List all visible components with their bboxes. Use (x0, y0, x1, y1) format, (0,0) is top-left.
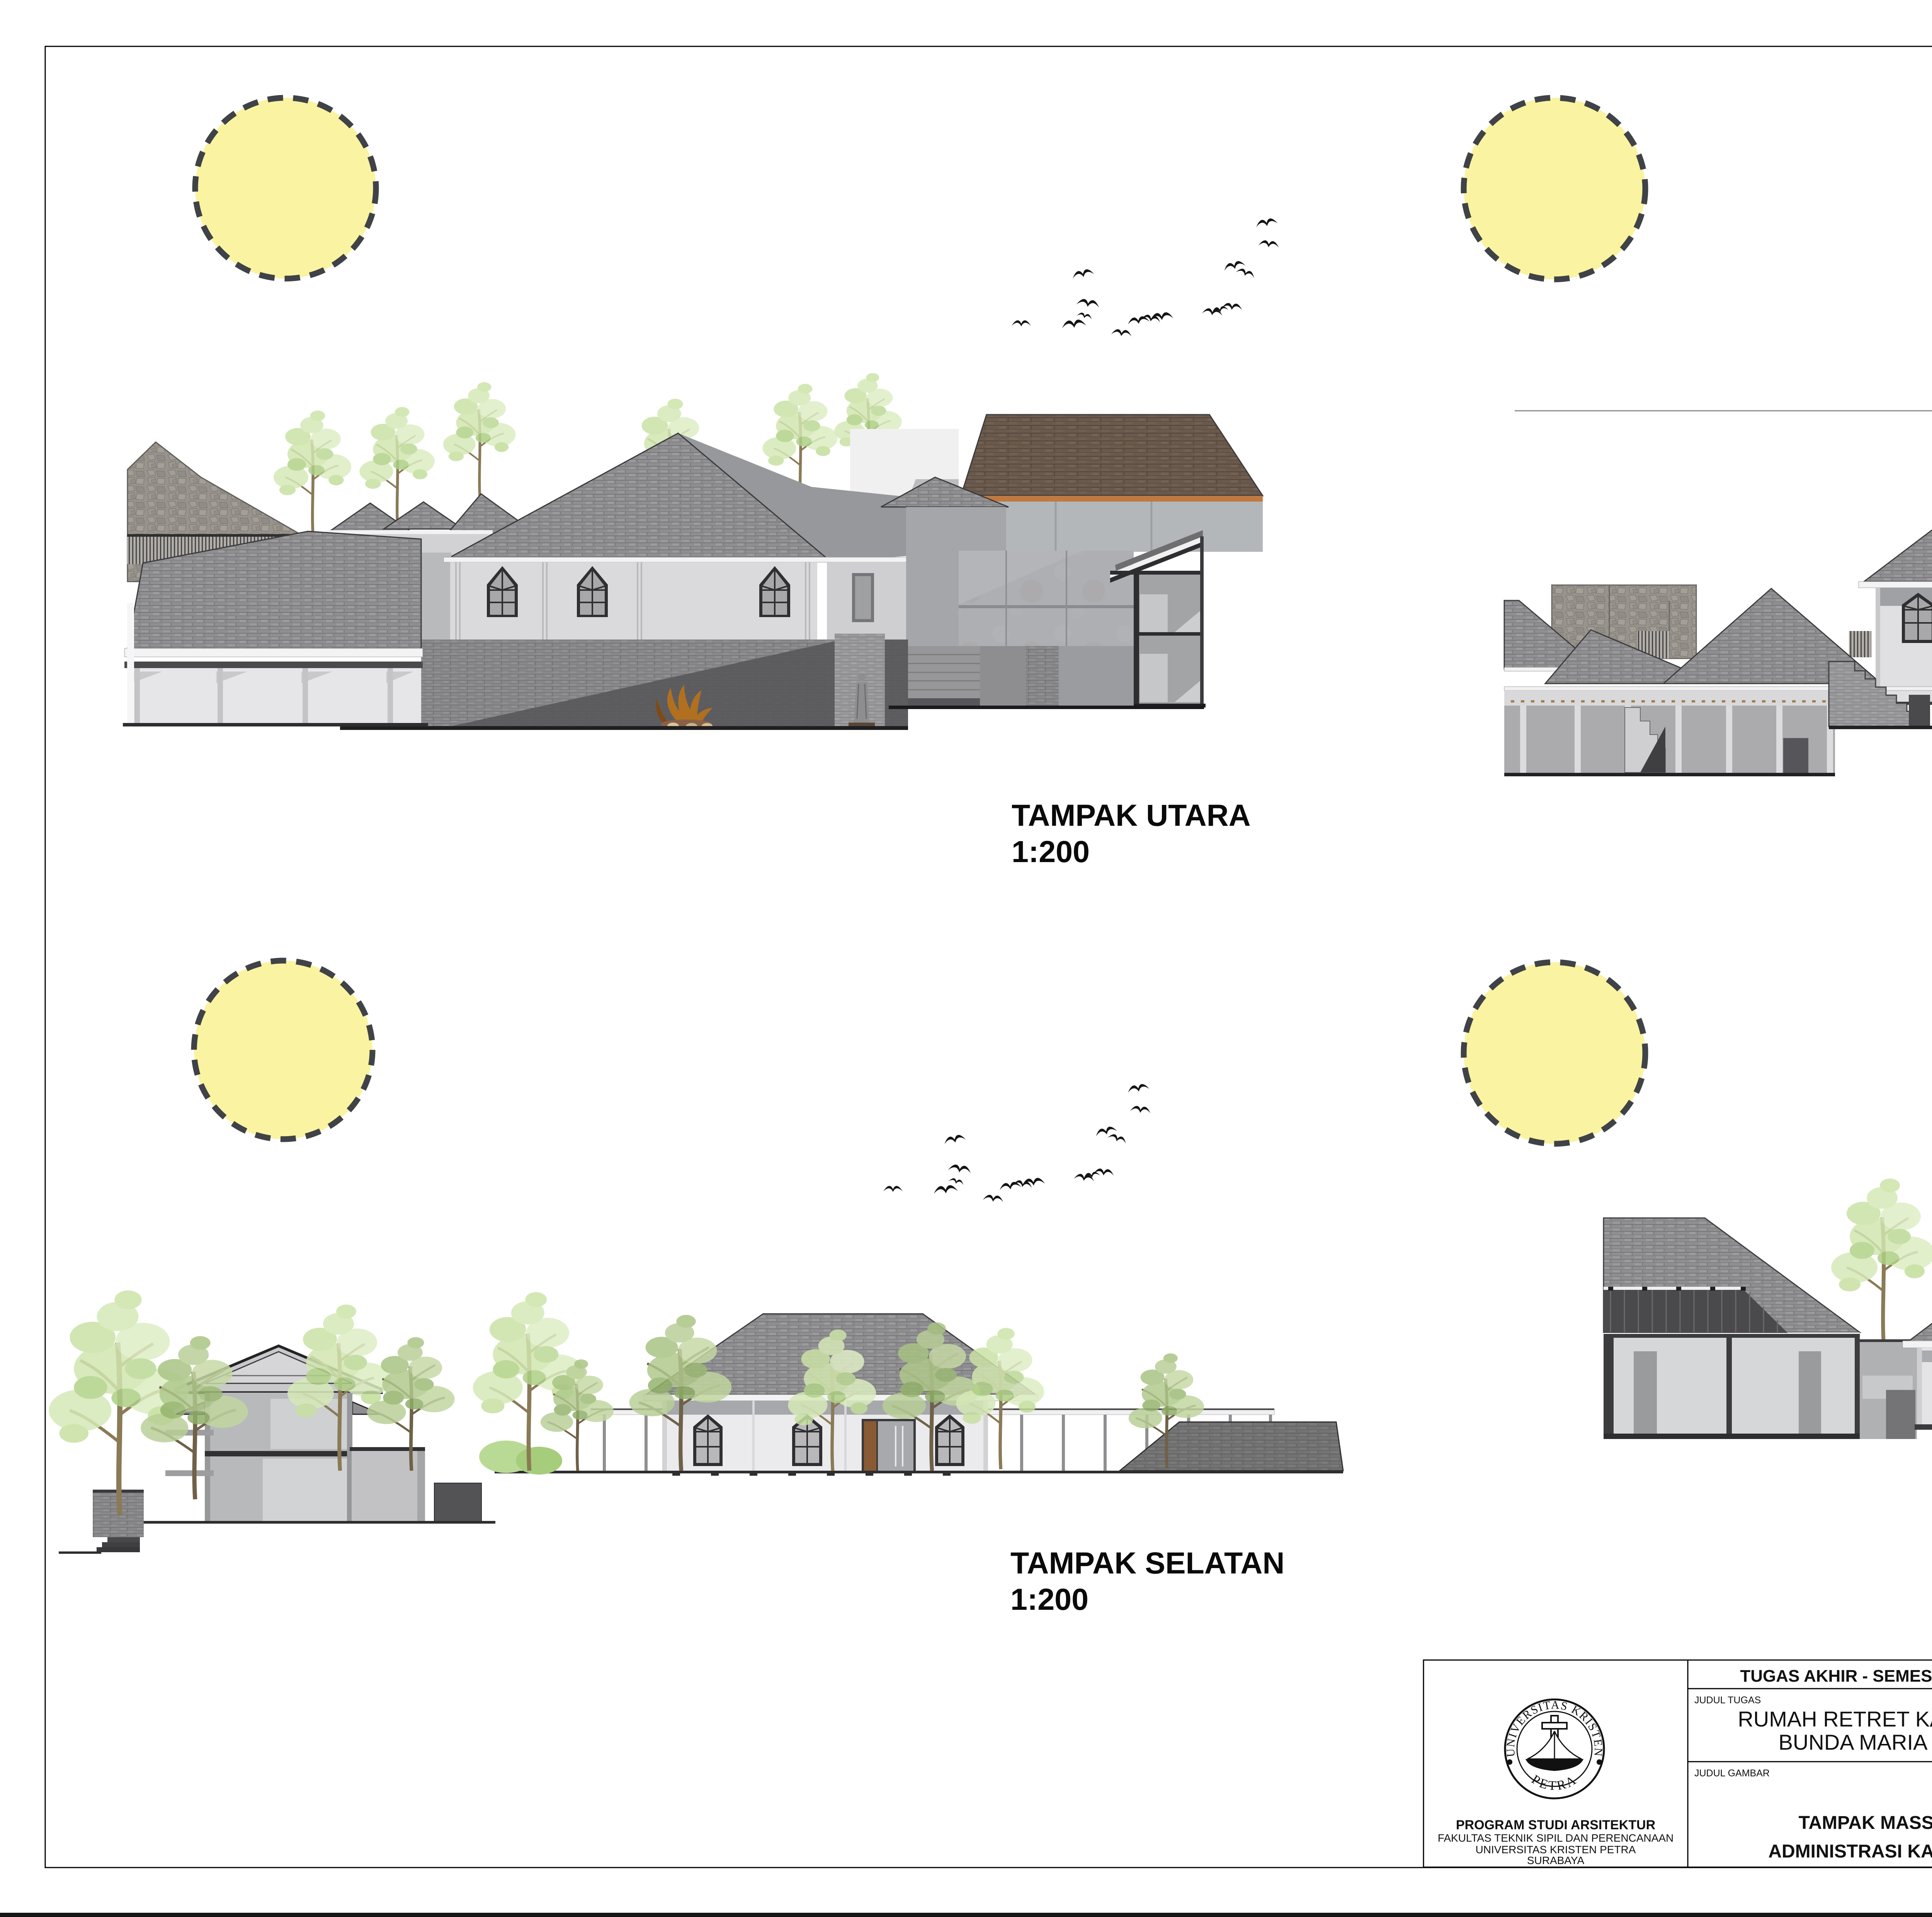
svg-text:RUMAH RETRET KATOLIK DI PAROKI: RUMAH RETRET KATOLIK DI PAROKI (1738, 1707, 1932, 1731)
svg-text:TAMPAK SELATAN: TAMPAK SELATAN (1010, 1546, 1284, 1580)
svg-text:1:200: 1:200 (1012, 834, 1090, 869)
svg-text:TUGAS AKHIR - SEMESTER GENAP 2: TUGAS AKHIR - SEMESTER GENAP 2023/2024 (1740, 1667, 1932, 1686)
svg-text:FAKULTAS TEKNIK SIPIL DAN PERE: FAKULTAS TEKNIK SIPIL DAN PERENCANAAN (1438, 1832, 1673, 1844)
svg-text:JUDUL GAMBAR: JUDUL GAMBAR (1694, 1768, 1770, 1779)
svg-text:SURABAYA: SURABAYA (1527, 1854, 1585, 1866)
svg-text:TAMPAK UTARA: TAMPAK UTARA (1012, 798, 1251, 832)
svg-text:TAMPAK MASSA: TAMPAK MASSA (1799, 1813, 1932, 1833)
svg-text:UNIVERSITAS KRISTEN PETRA: UNIVERSITAS KRISTEN PETRA (1476, 1844, 1636, 1856)
svg-text:PROGRAM STUDI ARSITEKTUR: PROGRAM STUDI ARSITEKTUR (1456, 1818, 1655, 1832)
svg-text:1:200: 1:200 (1010, 1582, 1088, 1616)
svg-text:ADMINISTRASI KANTIN: ADMINISTRASI KANTIN (1768, 1841, 1932, 1862)
svg-text:JUDUL TUGAS: JUDUL TUGAS (1694, 1695, 1761, 1706)
svg-text:BUNDA MARIA BANJARBARU: BUNDA MARIA BANJARBARU (1779, 1730, 1932, 1754)
